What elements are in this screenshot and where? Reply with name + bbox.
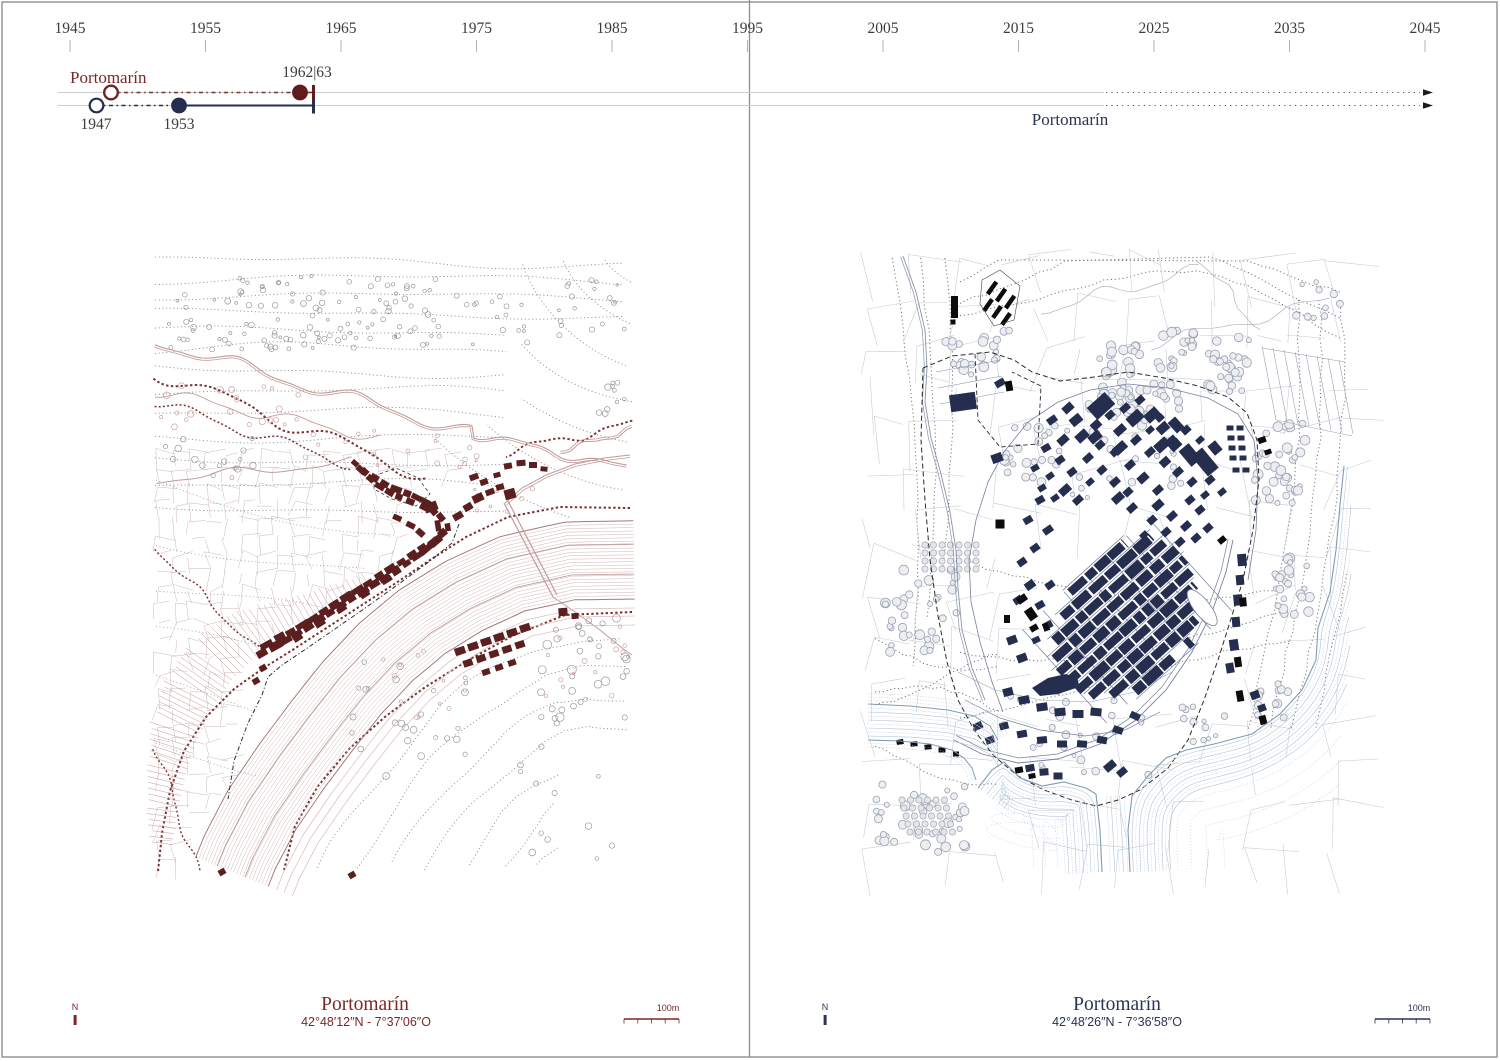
svg-text:1953: 1953	[164, 116, 195, 133]
svg-text:42°48′26″N - 7°36′58″O: 42°48′26″N - 7°36′58″O	[1052, 1015, 1182, 1029]
svg-text:42°48′12″N - 7°37′06″O: 42°48′12″N - 7°37′06″O	[301, 1015, 431, 1029]
svg-text:100m: 100m	[1408, 1003, 1431, 1013]
svg-text:Portomarín: Portomarín	[1073, 994, 1161, 1015]
svg-text:Portomarín: Portomarín	[321, 994, 409, 1015]
svg-text:2025: 2025	[1139, 20, 1170, 37]
svg-text:2005: 2005	[868, 20, 899, 37]
svg-text:Portomarín: Portomarín	[1032, 110, 1109, 129]
svg-text:1985: 1985	[597, 20, 628, 37]
svg-text:1965: 1965	[326, 20, 357, 37]
svg-text:Portomarín: Portomarín	[70, 68, 147, 87]
svg-text:N: N	[822, 1002, 829, 1012]
svg-text:2035: 2035	[1274, 20, 1305, 37]
svg-text:1962|63: 1962|63	[282, 64, 332, 81]
svg-text:1945: 1945	[55, 20, 86, 37]
svg-text:1995: 1995	[732, 20, 763, 37]
svg-text:2015: 2015	[1003, 20, 1034, 37]
svg-text:1947: 1947	[81, 116, 112, 133]
svg-text:2045: 2045	[1410, 20, 1441, 37]
svg-text:1975: 1975	[461, 20, 492, 37]
svg-text:100m: 100m	[657, 1003, 680, 1013]
svg-text:1955: 1955	[190, 20, 221, 37]
svg-text:N: N	[72, 1002, 79, 1012]
